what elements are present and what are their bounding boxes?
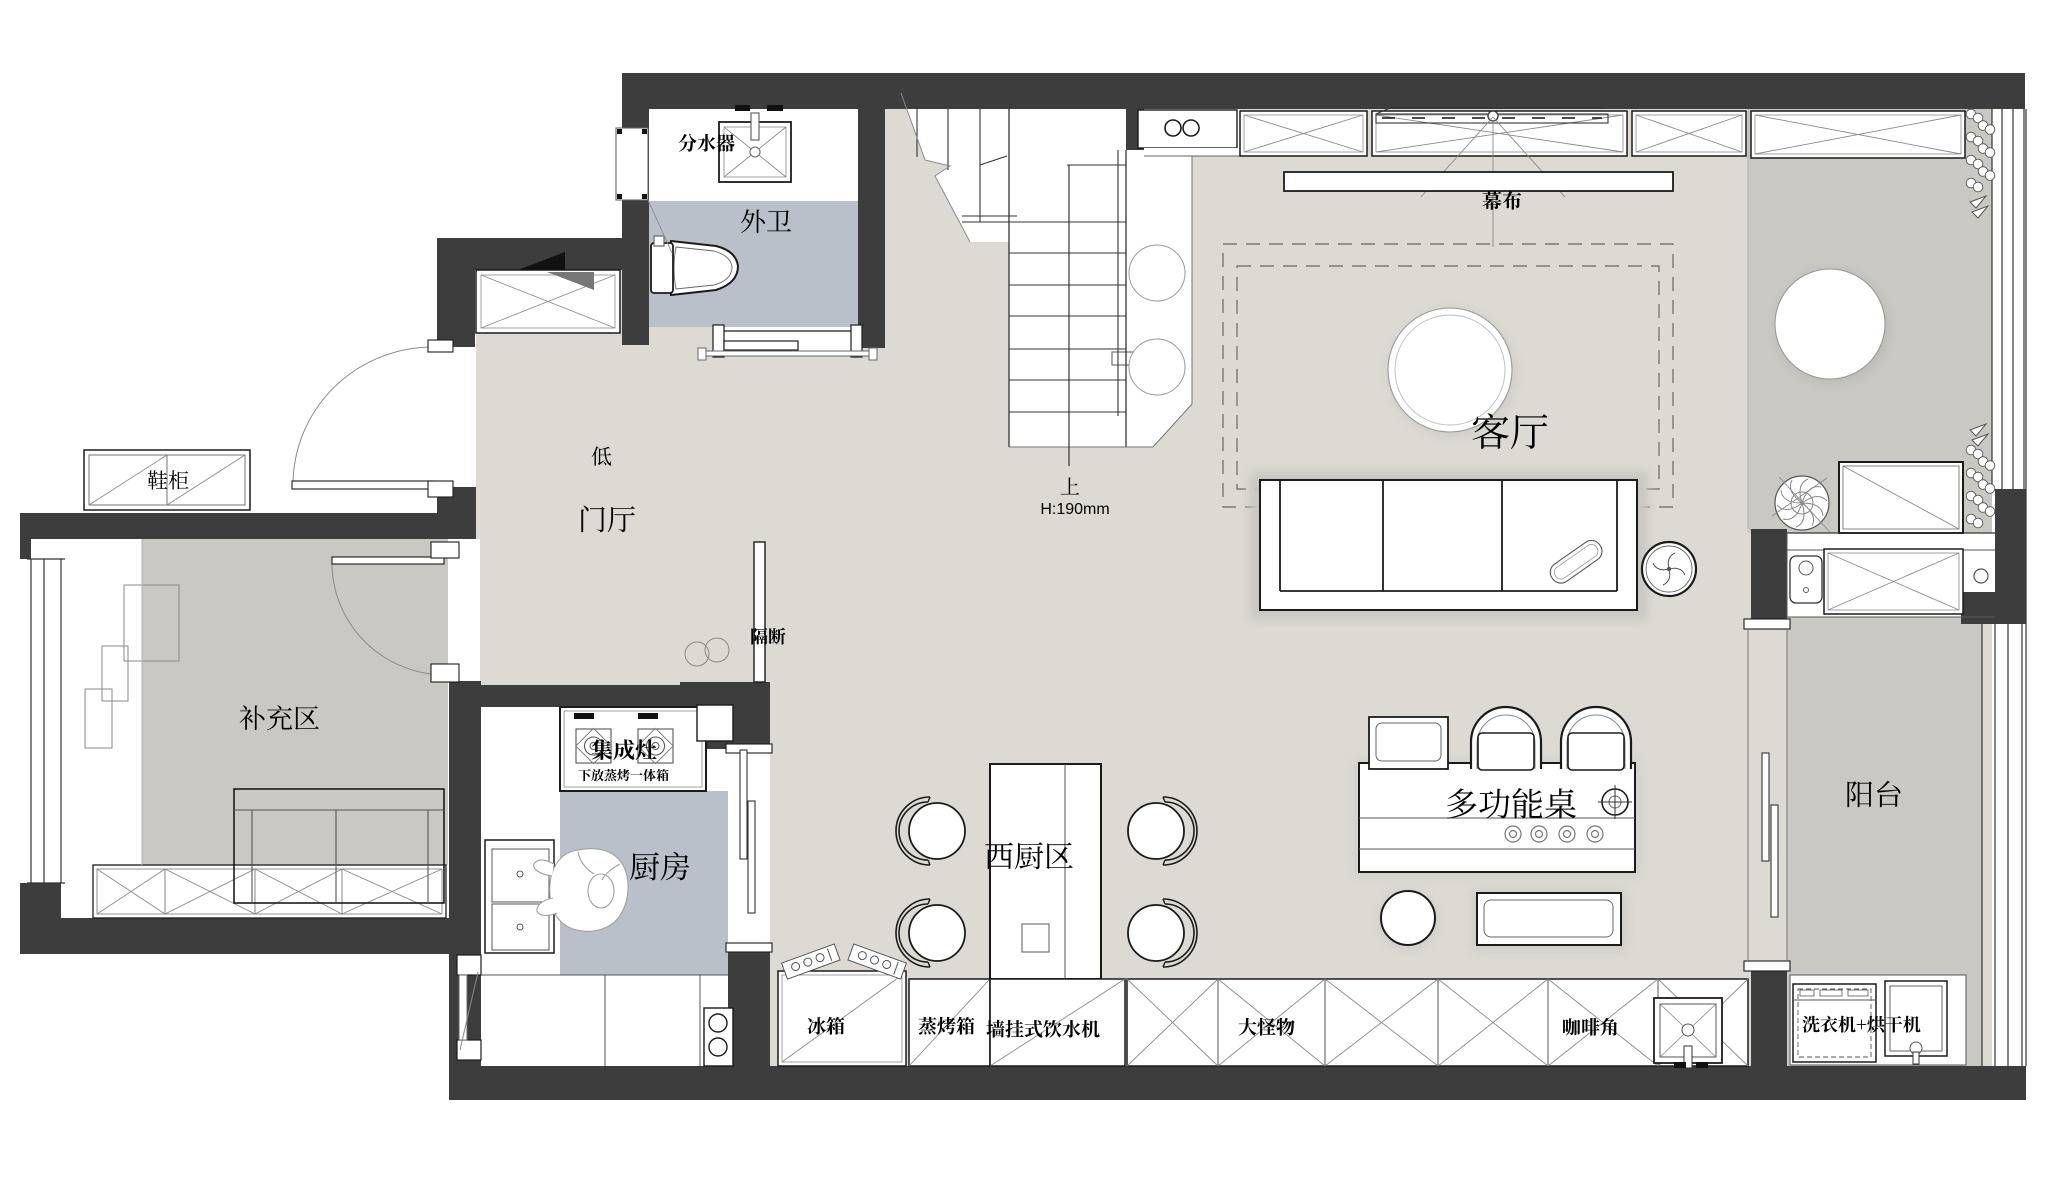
svg-text:H:190mm: H:190mm [1040, 501, 1109, 518]
